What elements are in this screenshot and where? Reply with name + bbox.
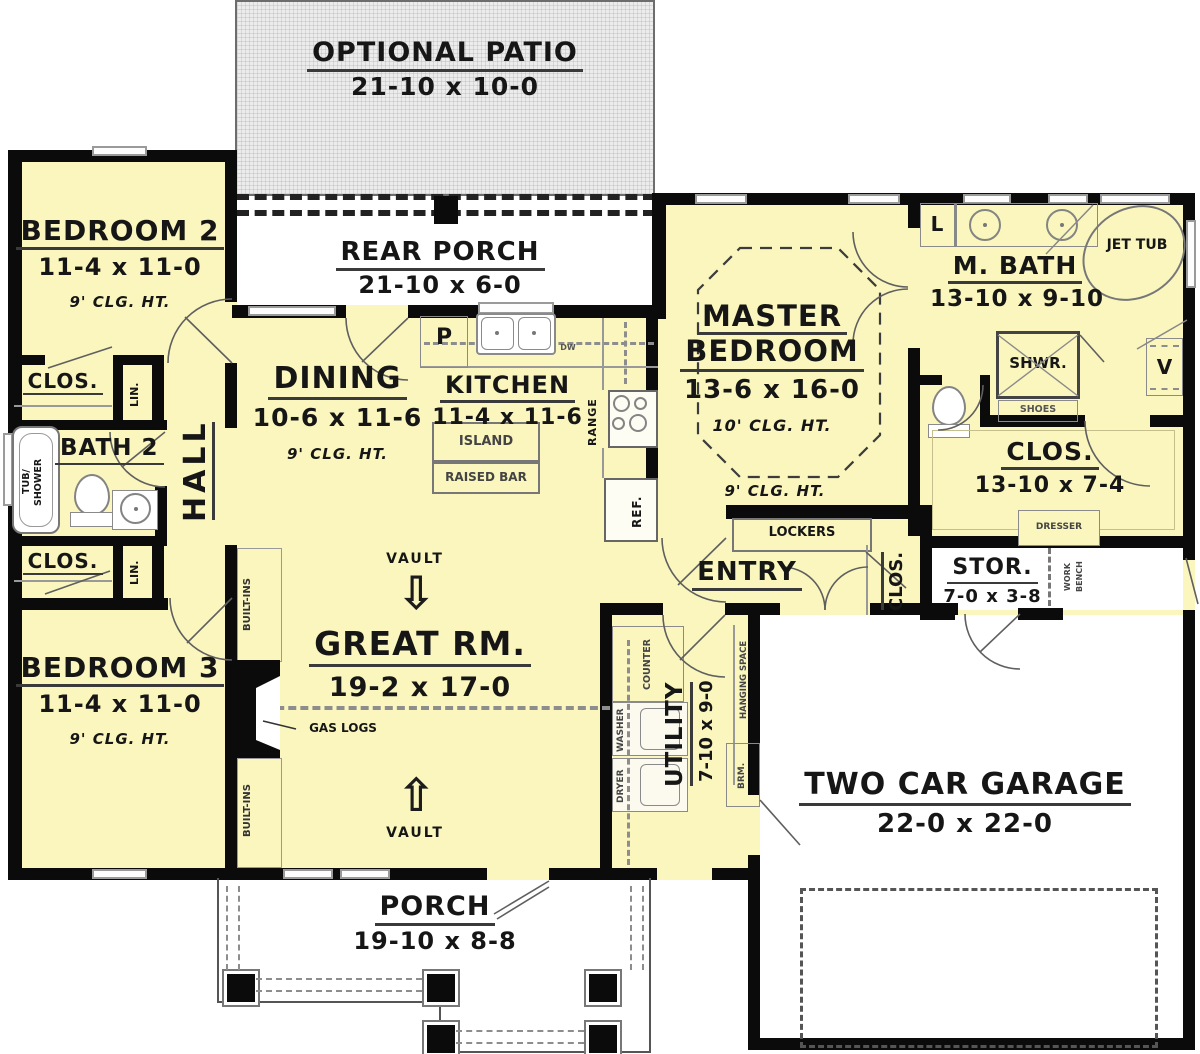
- door-swing: [663, 615, 725, 677]
- room-dims: 19-2 x 17-0: [329, 672, 511, 703]
- room-label-master-closet: CLOS. 13-10 x 7-4: [960, 438, 1140, 499]
- vault-arrow-down-icon: ⇩: [397, 570, 436, 616]
- door-swing: [825, 567, 868, 610]
- hall-underline: [212, 422, 215, 520]
- door-leaf: [1080, 335, 1104, 362]
- porch-column: [224, 971, 258, 1005]
- room-label-rear-porch: REAR PORCH 21-10 x 6-0: [280, 238, 600, 300]
- room-name: BEDROOM: [680, 335, 863, 371]
- room-dims: 10-6 x 11-6: [253, 403, 423, 432]
- porch-column: [586, 971, 620, 1005]
- room-label-utility-dims: 7-10 x 9-0: [696, 688, 717, 782]
- room-label-bedroom2: BEDROOM 2 11-4 x 11-0 9' CLG. HT.: [10, 215, 230, 313]
- room-dims: 13-10 x 7-4: [975, 473, 1126, 498]
- gas-logs-label: GAS LOGS: [298, 722, 388, 735]
- porch-step-dash: [456, 1030, 584, 1032]
- porch-step-dash: [226, 886, 228, 970]
- room-dims: 11-4 x 11-0: [38, 253, 201, 281]
- room-ceiling: 10' CLG. HT.: [712, 416, 831, 435]
- room-name: CLOS.: [1001, 438, 1098, 470]
- room-name: ENTRY: [692, 558, 802, 591]
- door-leaf: [48, 347, 112, 368]
- closet-label: CLOS.: [18, 550, 108, 575]
- room-label-bath2: BATH 2: [55, 436, 155, 465]
- room-dims: 21-10 x 6-0: [358, 271, 521, 299]
- porch-step-dash: [238, 886, 240, 970]
- room-name: OPTIONAL PATIO: [307, 38, 583, 72]
- porch-step-dash: [256, 978, 422, 980]
- room-label-dining: DINING 10-6 x 11-6 9' CLG. HT.: [245, 362, 430, 467]
- closet-name: CLOS.: [23, 550, 104, 575]
- room-name: TWO CAR GARAGE: [799, 768, 1131, 806]
- room-dims: 11-4 x 11-6: [432, 405, 583, 430]
- room-label-utility-name: UTILITY: [662, 678, 688, 790]
- fireplace-firebox: [256, 676, 280, 750]
- room-dims: 22-0 x 22-0: [877, 809, 1053, 839]
- porch-column: [424, 971, 458, 1005]
- room-ceiling: 9' CLG. HT.: [70, 293, 171, 311]
- room-dims: 19-10 x 8-8: [353, 927, 516, 955]
- room-label-master-bedroom: MASTER BEDROOM 13-6 x 16-0 10' CLG. HT.: [662, 300, 882, 438]
- porch-step-dash: [630, 886, 632, 970]
- floor-plan: P DW ISLAND RAISED BAR RANGE REF. TUB/ S…: [0, 0, 1200, 1054]
- room-ceiling: 9' CLG. HT.: [287, 445, 388, 463]
- room-name: BEDROOM 2: [16, 215, 225, 250]
- room-name: REAR PORCH: [336, 238, 545, 271]
- room-label-optional-patio: OPTIONAL PATIO 21-10 x 10-0: [285, 38, 605, 102]
- entry-closet-label: CLOS.: [886, 550, 907, 612]
- garage-door-outline: [800, 888, 1158, 1048]
- room-label-master-bath: M. BATH 13-10 x 9-10: [930, 252, 1100, 313]
- porch-column: [586, 1022, 620, 1054]
- shower-x: [998, 335, 1078, 396]
- room-label-garage: TWO CAR GARAGE 22-0 x 22-0: [790, 768, 1140, 839]
- linen-label: LIN.: [128, 543, 141, 603]
- room-dims: 21-10 x 10-0: [351, 72, 539, 101]
- vault-label: VAULT: [375, 826, 455, 842]
- room-dims: 13-10 x 9-10: [930, 286, 1104, 312]
- door-swing: [853, 232, 908, 287]
- door-leaf: [1186, 558, 1198, 604]
- room-name: GREAT RM.: [309, 626, 531, 667]
- porch-step-dash: [256, 990, 422, 992]
- room-label-storage: STOR. 7-0 x 3-8: [935, 556, 1050, 608]
- room-name: MASTER: [697, 300, 847, 335]
- room-label-porch: PORCH 19-10 x 8-8: [330, 892, 540, 956]
- room-dims: 11-4 x 11-0: [38, 690, 201, 718]
- room-dims: 7-0 x 3-8: [943, 586, 1041, 607]
- room-name: BATH 2: [55, 436, 164, 465]
- vault-arrow-up-icon: ⇧: [397, 772, 436, 818]
- room-name: STOR.: [947, 556, 1037, 584]
- room-label-kitchen: KITCHEN 11-4 x 11-6: [420, 372, 595, 431]
- room-name: BEDROOM 3: [16, 652, 225, 687]
- room-ceiling: 9' CLG. HT.: [70, 730, 171, 748]
- door-swing: [938, 385, 983, 430]
- room-label-great-room: GREAT RM. 19-2 x 17-0: [290, 626, 550, 704]
- porch-step-dash: [642, 886, 644, 970]
- master-outer-ceiling: 9' CLG. HT.: [700, 483, 850, 500]
- room-dims: 13-6 x 16-0: [684, 375, 860, 405]
- door-swing: [965, 614, 1020, 669]
- utility-underline: [690, 682, 693, 786]
- entry-closet-underline: [881, 552, 884, 610]
- closet-label: CLOS.: [18, 370, 108, 395]
- room-name: M. BATH: [948, 252, 1083, 284]
- closet-name: CLOS.: [23, 370, 104, 395]
- porch-step-dash: [456, 1042, 584, 1044]
- room-name: DINING: [268, 362, 406, 400]
- room-name: KITCHEN: [440, 372, 575, 403]
- room-label-bedroom3: BEDROOM 3 11-4 x 11-0 9' CLG. HT.: [10, 652, 230, 750]
- porch-column: [424, 1022, 458, 1054]
- linen-label: LIN.: [128, 368, 141, 422]
- room-label-hall: HALL: [178, 418, 213, 523]
- room-name: PORCH: [375, 892, 496, 926]
- room-label-entry: ENTRY: [682, 558, 812, 591]
